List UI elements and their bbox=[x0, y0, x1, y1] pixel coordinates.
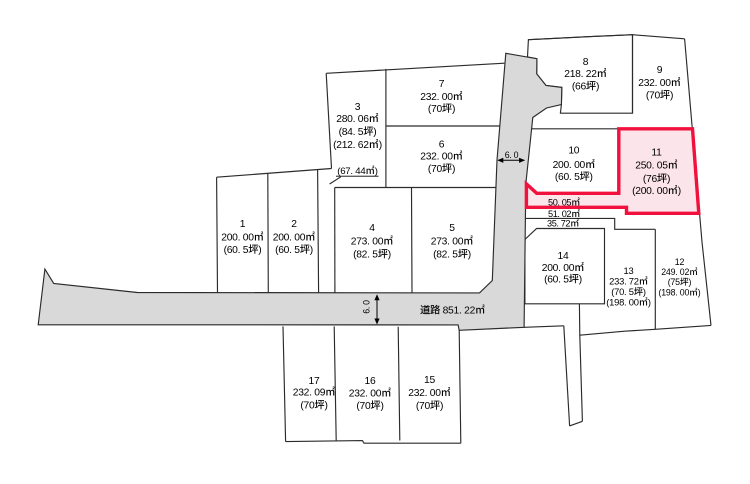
svg-text:(84. 5坪): (84. 5坪) bbox=[339, 126, 377, 138]
svg-text:10: 10 bbox=[568, 146, 579, 157]
svg-text:(70. 5坪): (70. 5坪) bbox=[611, 286, 646, 297]
svg-text:200. 00㎡: 200. 00㎡ bbox=[273, 230, 315, 243]
svg-text:(82. 5坪): (82. 5坪) bbox=[353, 248, 391, 260]
svg-text:1: 1 bbox=[240, 219, 246, 230]
svg-text:(70坪): (70坪) bbox=[428, 163, 455, 175]
svg-text:50. 05㎡: 50. 05㎡ bbox=[548, 197, 580, 208]
svg-text:(82. 5坪): (82. 5坪) bbox=[433, 248, 471, 260]
svg-text:16: 16 bbox=[365, 376, 376, 387]
svg-text:道路 851. 22㎡: 道路 851. 22㎡ bbox=[420, 304, 485, 317]
svg-text:12: 12 bbox=[675, 257, 685, 267]
svg-text:6: 6 bbox=[439, 139, 445, 150]
svg-text:218. 22㎡: 218. 22㎡ bbox=[564, 67, 606, 80]
svg-text:3: 3 bbox=[355, 102, 361, 113]
svg-text:232. 00㎡: 232. 00㎡ bbox=[420, 150, 462, 163]
svg-text:(200. 00㎡): (200. 00㎡) bbox=[632, 184, 681, 197]
svg-text:249. 02㎡: 249. 02㎡ bbox=[661, 267, 698, 277]
svg-text:2: 2 bbox=[291, 219, 297, 230]
svg-text:(70坪): (70坪) bbox=[300, 400, 327, 412]
svg-text:233. 72㎡: 233. 72㎡ bbox=[609, 275, 648, 286]
svg-text:(66坪): (66坪) bbox=[572, 81, 599, 93]
svg-text:6. 0: 6. 0 bbox=[505, 150, 519, 160]
svg-text:273. 00㎡: 273. 00㎡ bbox=[431, 234, 473, 247]
svg-text:250. 05㎡: 250. 05㎡ bbox=[635, 158, 677, 171]
svg-text:280. 06㎡: 280. 06㎡ bbox=[336, 112, 378, 125]
svg-text:(212. 62㎡): (212. 62㎡) bbox=[333, 138, 382, 151]
svg-text:200. 00㎡: 200. 00㎡ bbox=[542, 261, 584, 274]
svg-text:4: 4 bbox=[369, 223, 375, 234]
svg-text:7: 7 bbox=[439, 79, 445, 90]
svg-text:232. 09㎡: 232. 09㎡ bbox=[293, 386, 335, 399]
svg-text:273. 00㎡: 273. 00㎡ bbox=[351, 234, 393, 247]
svg-text:(60. 5坪): (60. 5坪) bbox=[224, 244, 262, 256]
svg-text:17: 17 bbox=[309, 376, 320, 387]
svg-text:(70坪): (70坪) bbox=[646, 89, 673, 101]
svg-text:5: 5 bbox=[449, 223, 455, 234]
svg-text:35. 72㎡: 35. 72㎡ bbox=[547, 218, 579, 229]
svg-text:(67. 44㎡): (67. 44㎡) bbox=[337, 165, 377, 177]
svg-text:6. 0: 6. 0 bbox=[362, 300, 372, 314]
svg-text:(70坪): (70坪) bbox=[356, 400, 383, 412]
svg-text:(70坪): (70坪) bbox=[416, 400, 443, 412]
svg-text:9: 9 bbox=[657, 65, 663, 76]
svg-text:232. 00㎡: 232. 00㎡ bbox=[420, 90, 462, 103]
svg-text:(60. 5坪): (60. 5坪) bbox=[555, 171, 593, 183]
svg-text:(198. 00㎡): (198. 00㎡) bbox=[658, 287, 700, 297]
svg-text:14: 14 bbox=[558, 251, 569, 262]
svg-text:(70坪): (70坪) bbox=[428, 103, 455, 115]
svg-text:8: 8 bbox=[583, 57, 589, 68]
svg-text:11: 11 bbox=[651, 148, 662, 159]
svg-text:200. 00㎡: 200. 00㎡ bbox=[553, 158, 595, 171]
svg-text:(60. 5坪): (60. 5坪) bbox=[275, 244, 313, 256]
svg-text:232. 00㎡: 232. 00㎡ bbox=[408, 386, 450, 399]
svg-text:(76坪): (76坪) bbox=[643, 173, 670, 185]
svg-text:51. 02㎡: 51. 02㎡ bbox=[548, 208, 580, 219]
svg-text:232. 00㎡: 232. 00㎡ bbox=[349, 386, 391, 399]
svg-text:(60. 5坪): (60. 5坪) bbox=[544, 274, 582, 286]
svg-text:15: 15 bbox=[424, 375, 435, 386]
svg-text:(75坪): (75坪) bbox=[668, 277, 692, 287]
svg-text:(198. 00㎡): (198. 00㎡) bbox=[606, 297, 651, 308]
svg-text:232. 00㎡: 232. 00㎡ bbox=[638, 76, 680, 89]
svg-text:200. 00㎡: 200. 00㎡ bbox=[221, 230, 263, 243]
